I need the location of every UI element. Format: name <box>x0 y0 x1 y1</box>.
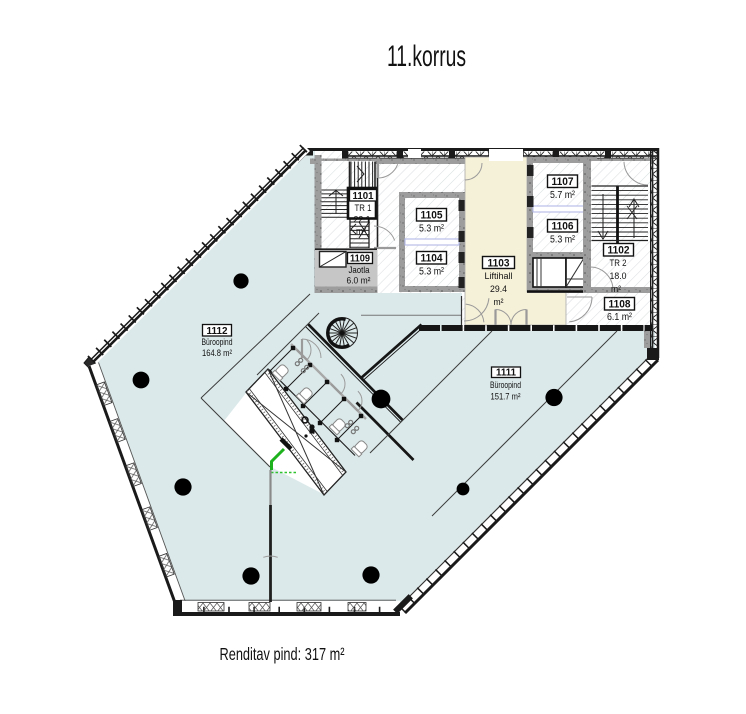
svg-text:m²: m² <box>494 297 504 308</box>
svg-text:Jaotla: Jaotla <box>349 265 371 276</box>
svg-text:5.3 m²: 5.3 m² <box>419 224 445 235</box>
svg-text:m²: m² <box>611 284 621 295</box>
svg-text:22.1: 22.1 <box>354 215 371 226</box>
svg-text:Büroopind: Büroopind <box>202 337 233 348</box>
svg-text:Büroopind: Büroopind <box>490 380 521 391</box>
svg-text:TR 2: TR 2 <box>610 258 627 269</box>
svg-text:11.korrus: 11.korrus <box>387 40 466 73</box>
svg-text:1102: 1102 <box>608 245 630 257</box>
svg-text:1106: 1106 <box>552 221 574 233</box>
svg-text:m²: m² <box>356 226 366 237</box>
svg-text:1104: 1104 <box>421 253 444 265</box>
svg-text:5.3 m²: 5.3 m² <box>550 235 576 246</box>
svg-text:1107: 1107 <box>552 176 574 188</box>
svg-text:1108: 1108 <box>609 299 631 311</box>
svg-text:1103: 1103 <box>488 258 510 270</box>
svg-text:18.0: 18.0 <box>610 271 627 282</box>
svg-text:6.1 m²: 6.1 m² <box>607 312 633 323</box>
svg-text:5.3 m²: 5.3 m² <box>419 267 445 278</box>
svg-text:Renditav pind: 317 m²: Renditav pind: 317 m² <box>220 644 345 664</box>
svg-text:151.7 m²: 151.7 m² <box>491 392 521 403</box>
svg-text:1112: 1112 <box>207 325 228 337</box>
svg-text:1109: 1109 <box>350 253 370 265</box>
svg-text:1105: 1105 <box>421 210 443 222</box>
svg-text:29.4: 29.4 <box>490 284 507 295</box>
svg-text:1101: 1101 <box>353 190 374 202</box>
svg-text:6.0 m²: 6.0 m² <box>347 276 371 287</box>
svg-text:Liftihall: Liftihall <box>485 271 513 282</box>
svg-text:164.8 m²: 164.8 m² <box>202 348 232 359</box>
svg-text:TR 1: TR 1 <box>355 203 372 214</box>
svg-text:1111: 1111 <box>496 368 516 379</box>
svg-text:5.7 m²: 5.7 m² <box>550 190 576 201</box>
